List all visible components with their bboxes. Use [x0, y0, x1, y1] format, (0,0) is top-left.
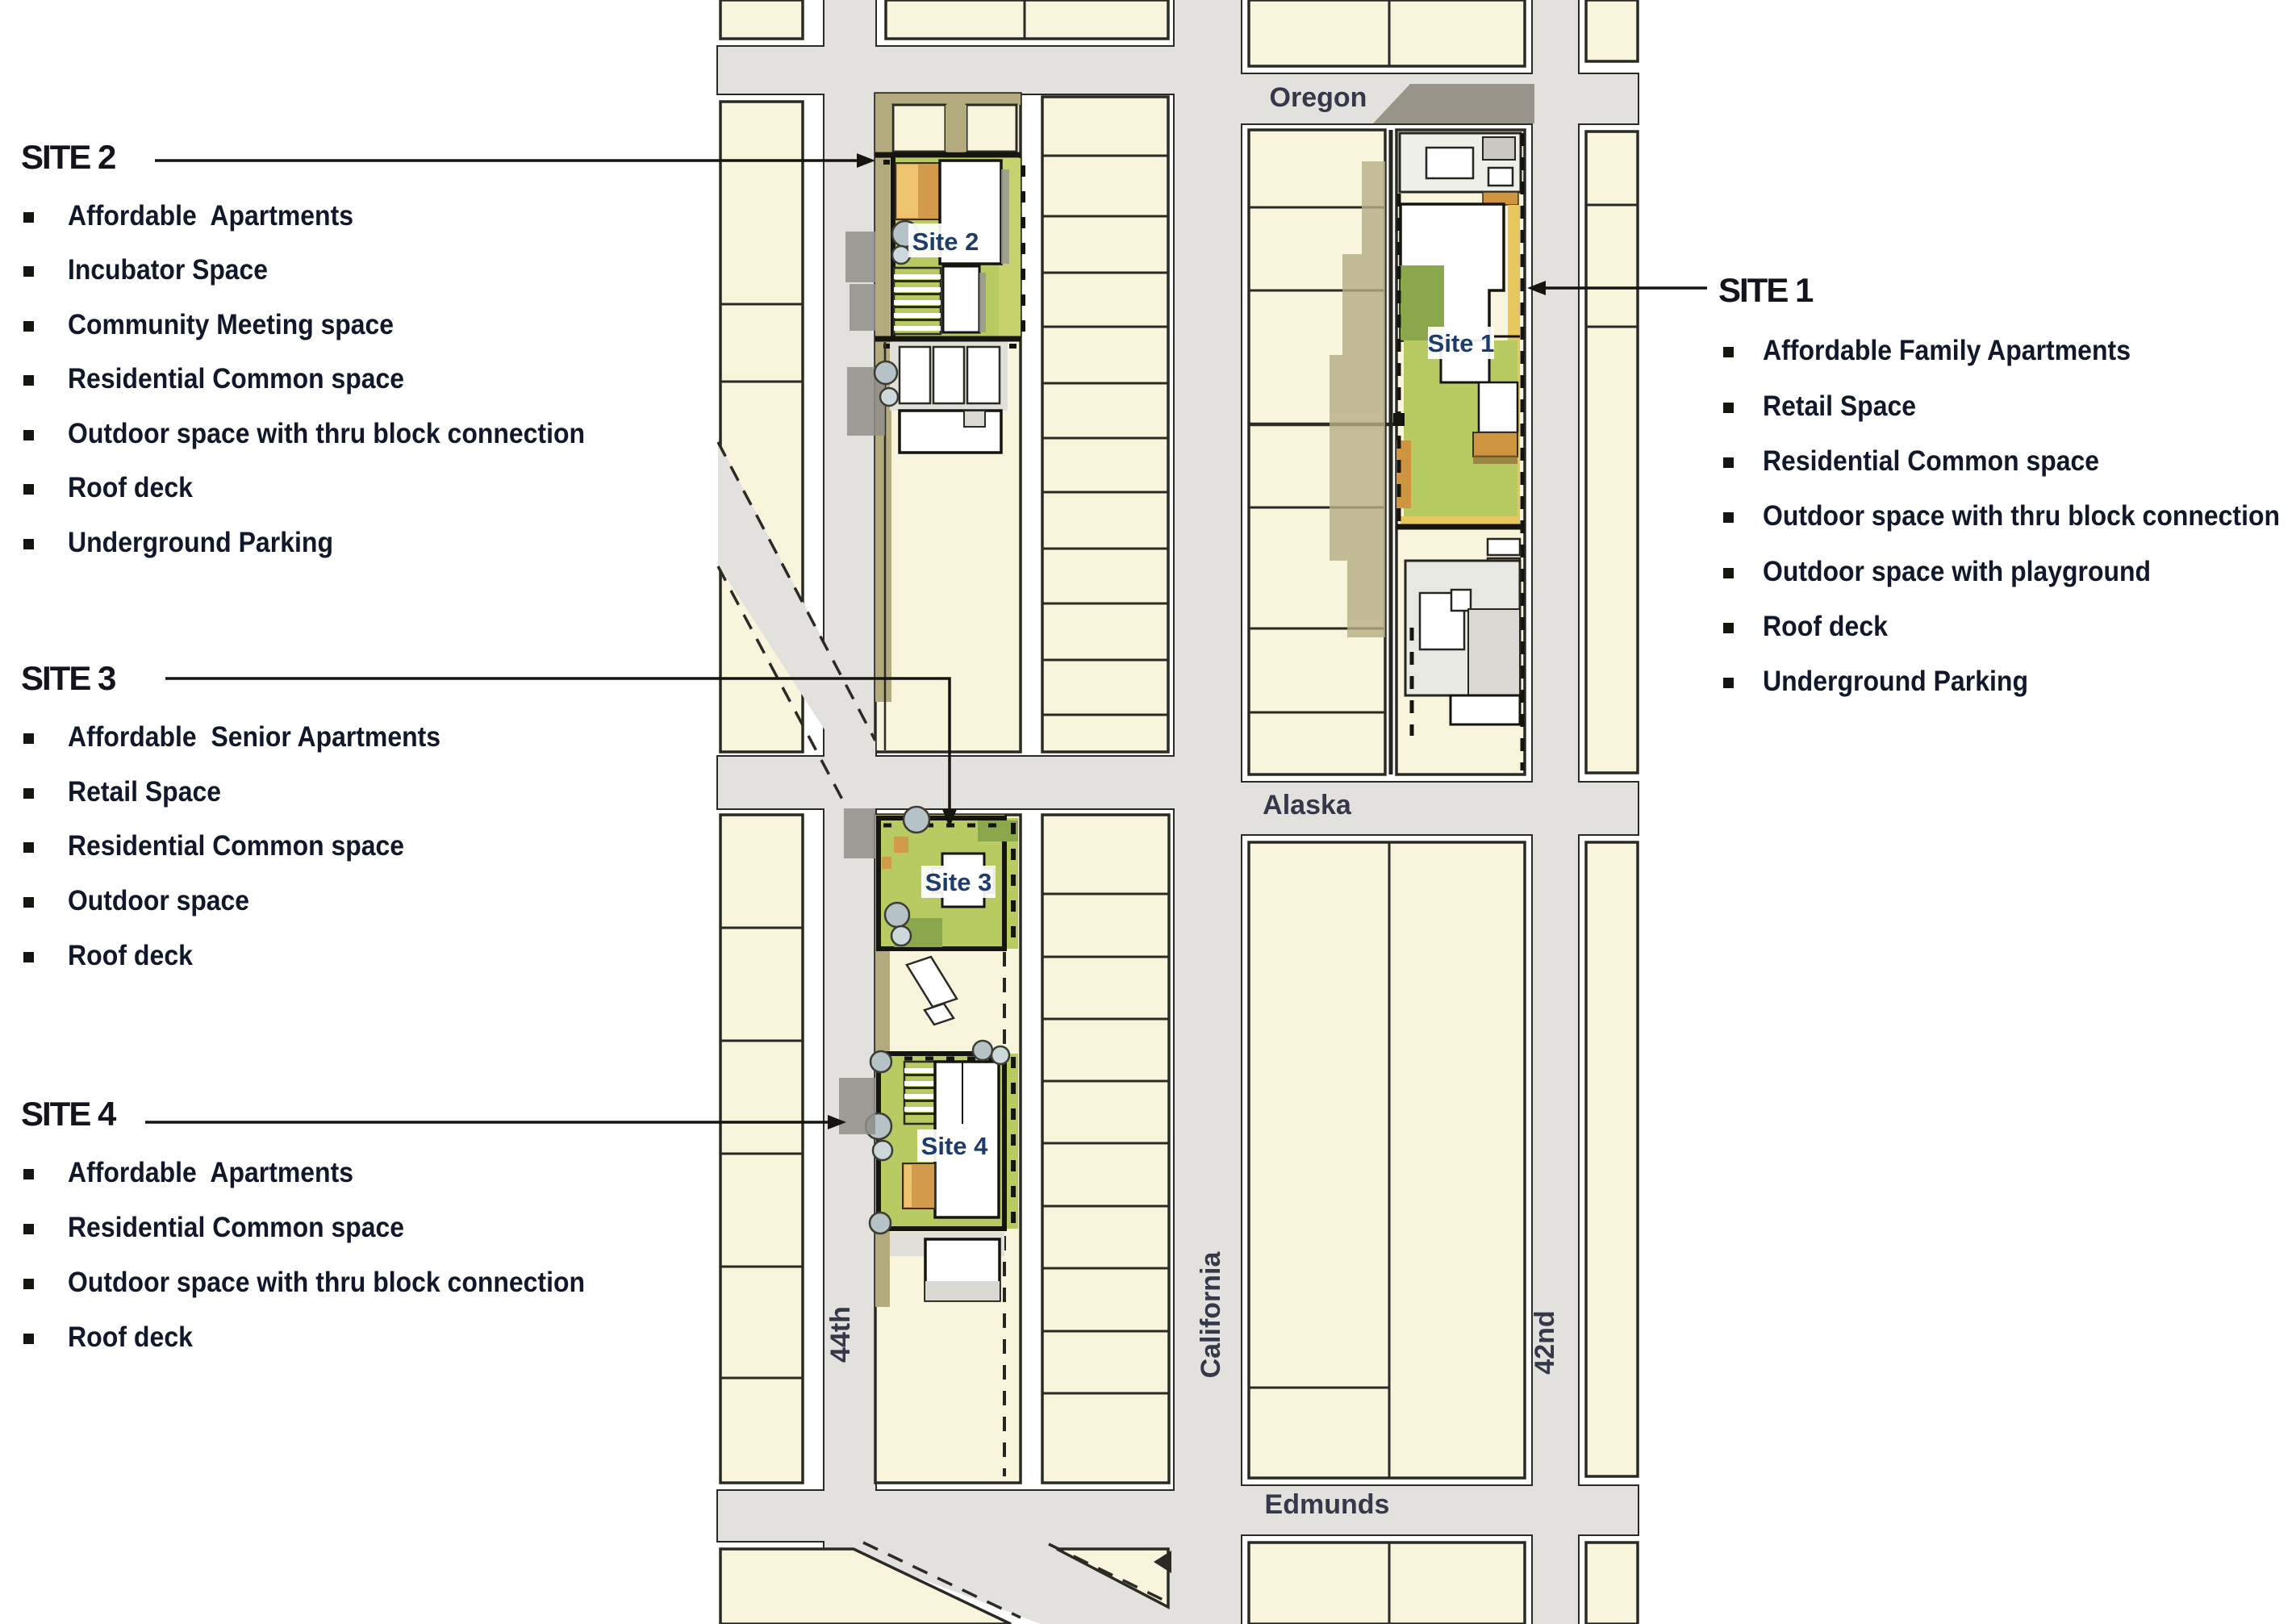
svg-text:Affordable Family Apartments: Affordable Family Apartments — [1763, 335, 2131, 366]
svg-text:Incubator Space: Incubator Space — [68, 254, 268, 286]
svg-text:Outdoor space with thru block: Outdoor space with thru block connection — [68, 418, 585, 449]
svg-text:SITE 3: SITE 3 — [21, 659, 115, 697]
svg-text:Residential Common space: Residential Common space — [68, 363, 404, 395]
svg-text:Site 4: Site 4 — [921, 1132, 988, 1160]
svg-text:Roof deck: Roof deck — [68, 940, 193, 971]
svg-text:Site 1: Site 1 — [1428, 329, 1495, 357]
svg-text:Site 3: Site 3 — [925, 868, 992, 896]
svg-text:Residential Common space: Residential Common space — [1763, 445, 2099, 477]
svg-text:Affordable Apartments: Affordable Apartments — [68, 1157, 353, 1188]
svg-text:Roof deck: Roof deck — [68, 472, 193, 503]
svg-text:Retail Space: Retail Space — [1763, 390, 1916, 422]
svg-text:Outdoor space with thru block: Outdoor space with thru block connection — [1763, 500, 2280, 532]
svg-text:Outdoor space with playground: Outdoor space with playground — [1763, 556, 2151, 587]
svg-text:Underground Parking: Underground Parking — [68, 527, 333, 558]
svg-text:SITE 4: SITE 4 — [21, 1095, 117, 1133]
svg-text:Residential Common space: Residential Common space — [68, 830, 404, 862]
svg-text:Affordable Apartments: Affordable Apartments — [68, 200, 353, 232]
svg-text:Alaska: Alaska — [1263, 790, 1352, 820]
svg-text:Edmunds: Edmunds — [1265, 1489, 1390, 1520]
svg-text:Affordable Senior Apartments: Affordable Senior Apartments — [68, 721, 440, 753]
svg-text:Underground Parking: Underground Parking — [1763, 666, 2028, 697]
svg-text:Residential Common space: Residential Common space — [68, 1212, 404, 1243]
svg-text:44th: 44th — [825, 1306, 856, 1363]
svg-text:SITE 2: SITE 2 — [21, 138, 115, 176]
svg-text:Roof deck: Roof deck — [68, 1321, 193, 1353]
svg-text:Outdoor space with thru block: Outdoor space with thru block connection — [68, 1267, 585, 1298]
svg-text:California: California — [1196, 1251, 1226, 1379]
svg-text:42nd: 42nd — [1530, 1310, 1560, 1374]
svg-text:Community Meeting space: Community Meeting space — [68, 309, 394, 340]
svg-text:Outdoor space: Outdoor space — [68, 885, 249, 916]
svg-text:Roof deck: Roof deck — [1763, 611, 1888, 642]
svg-text:Oregon: Oregon — [1270, 82, 1367, 113]
svg-text:Retail Space: Retail Space — [68, 776, 221, 808]
svg-text:SITE 1: SITE 1 — [1718, 271, 1814, 309]
svg-text:Site 2: Site 2 — [912, 228, 979, 256]
